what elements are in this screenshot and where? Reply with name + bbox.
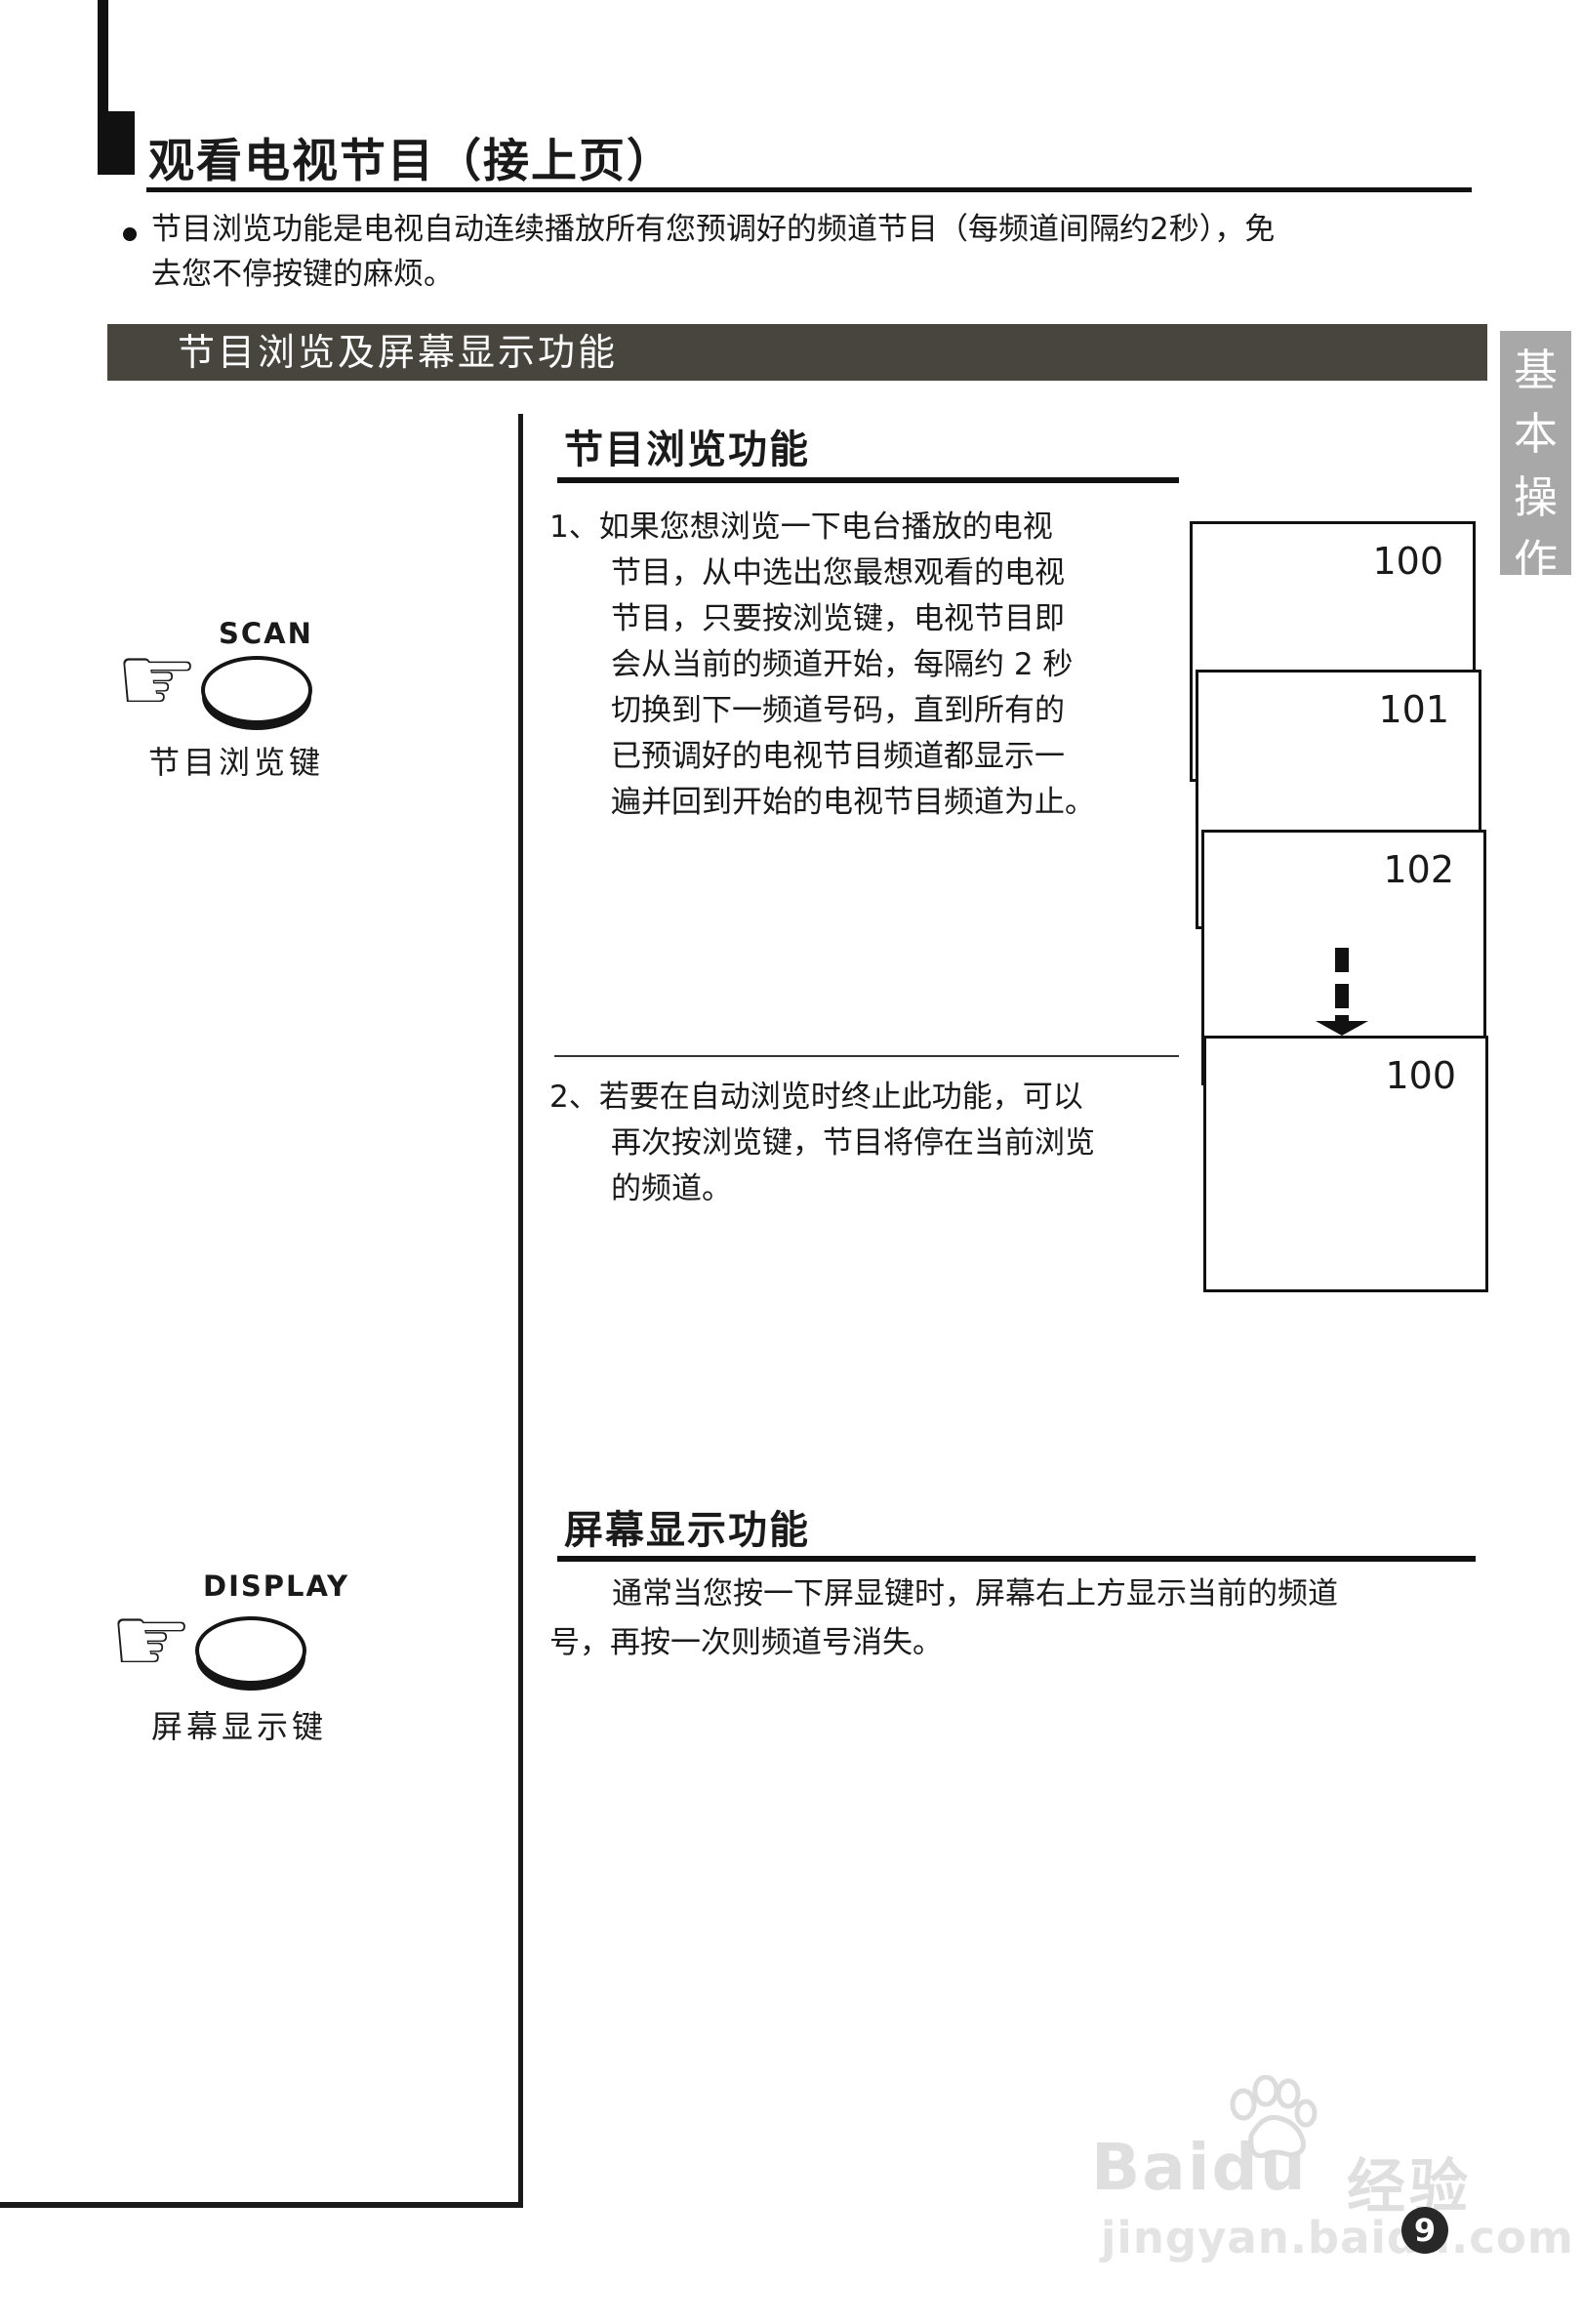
scan-button-illustration: ☞ <box>115 634 349 752</box>
paw-icon <box>1222 2075 1319 2167</box>
pointing-hand-icon: ☞ <box>115 625 199 734</box>
side-tab-char: 操 <box>1514 462 1558 525</box>
step2-line: 的频道。 <box>611 1166 1194 1212</box>
side-tab-char: 基 <box>1514 335 1558 398</box>
down-arrow-icon <box>1335 948 1349 972</box>
scan-oval-button <box>201 656 312 724</box>
intro-paragraph: 节目浏览功能是电视自动连续播放所有您预调好的频道节目（每频道间隔约2秒），免 去… <box>151 207 1537 297</box>
side-tab-char: 作 <box>1514 525 1558 589</box>
browse-step-1: 1、如果您想浏览一下电台播放的电视 节目，从中选出您最想观看的电视 节目，只要按… <box>549 505 1194 826</box>
top-edge-mark <box>98 0 108 115</box>
channel-number: 101 <box>1378 688 1449 731</box>
section-square-mark <box>98 111 135 175</box>
browse-step-2: 2、若要在自动浏览时终止此功能，可以 再次按浏览键，节目将停在当前浏览 的频道。 <box>549 1075 1194 1212</box>
step-separator-line <box>554 1055 1179 1057</box>
side-tab-basic-operation: 基 本 操 作 <box>1500 331 1571 575</box>
watermark-url: jingyan.baidu.com <box>1101 2212 1574 2263</box>
display-button-caption: 屏幕显示键 <box>151 1702 327 1747</box>
content-divider-bottom <box>0 2202 523 2208</box>
intro-line-1: 节目浏览功能是电视自动连续播放所有您预调好的频道节目（每频道间隔约2秒），免 <box>151 207 1537 252</box>
page-title: 观看电视节目（接上页） <box>148 123 674 190</box>
browse-heading-underline <box>557 477 1179 483</box>
side-tab-char: 本 <box>1514 398 1558 462</box>
step1-line: 节目，只要按浏览键，电视节目即 <box>611 596 1194 642</box>
step1-line: 遍并回到开始的电视节目频道为止。 <box>611 780 1194 826</box>
section-header-text: 节目浏览及屏幕显示功能 <box>178 331 618 374</box>
down-arrow-icon <box>1335 984 1349 1008</box>
step1-line: 已预调好的电视节目频道都显示一 <box>611 734 1194 780</box>
down-arrow-head-icon <box>1316 1021 1368 1036</box>
pointing-hand-icon: ☞ <box>109 1585 193 1694</box>
step2-line: 再次按浏览键，节目将停在当前浏览 <box>611 1121 1194 1166</box>
title-underline <box>146 187 1472 192</box>
content-divider-vertical <box>518 414 523 2208</box>
step1-line: 切换到下一频道号码，直到所有的 <box>611 688 1194 734</box>
browse-section-heading: 节目浏览功能 <box>564 418 810 474</box>
step1-line: 会从当前的频道开始，每隔约 2 秒 <box>611 642 1194 688</box>
step1-line: 节目，从中选出您最想观看的电视 <box>611 550 1194 596</box>
display-button-illustration: ☞ <box>109 1595 344 1712</box>
channel-number: 100 <box>1385 1054 1456 1097</box>
channel-number: 102 <box>1383 848 1454 891</box>
step2-line: 2、若要在自动浏览时终止此功能，可以 <box>549 1075 1194 1121</box>
osd-paragraph: 通常当您按一下屏显键时，屏幕右上方显示当前的频道 号，再按一次则频道号消失。 <box>549 1570 1506 1667</box>
osd-section-heading: 屏幕显示功能 <box>564 1498 810 1555</box>
section-header-bar: 节目浏览及屏幕显示功能 <box>107 324 1487 381</box>
step1-line: 1、如果您想浏览一下电台播放的电视 <box>549 505 1194 550</box>
scan-button-caption: 节目浏览键 <box>148 738 324 783</box>
page-number: 9 <box>1414 2212 1436 2249</box>
tv-screen-100-return: 100 <box>1203 1036 1488 1292</box>
osd-line: 号，再按一次则频道号消失。 <box>549 1618 1506 1667</box>
display-oval-button <box>195 1616 306 1685</box>
osd-line: 通常当您按一下屏显键时，屏幕右上方显示当前的频道 <box>549 1570 1506 1618</box>
channel-number: 100 <box>1372 540 1443 583</box>
bullet-icon <box>123 227 137 241</box>
page-number-badge: 9 <box>1401 2207 1448 2254</box>
manual-page: 观看电视节目（接上页） 节目浏览功能是电视自动连续播放所有您预调好的频道节目（每… <box>0 0 1582 2324</box>
osd-heading-underline <box>557 1556 1476 1562</box>
intro-line-2: 去您不停按键的麻烦。 <box>151 252 1537 297</box>
